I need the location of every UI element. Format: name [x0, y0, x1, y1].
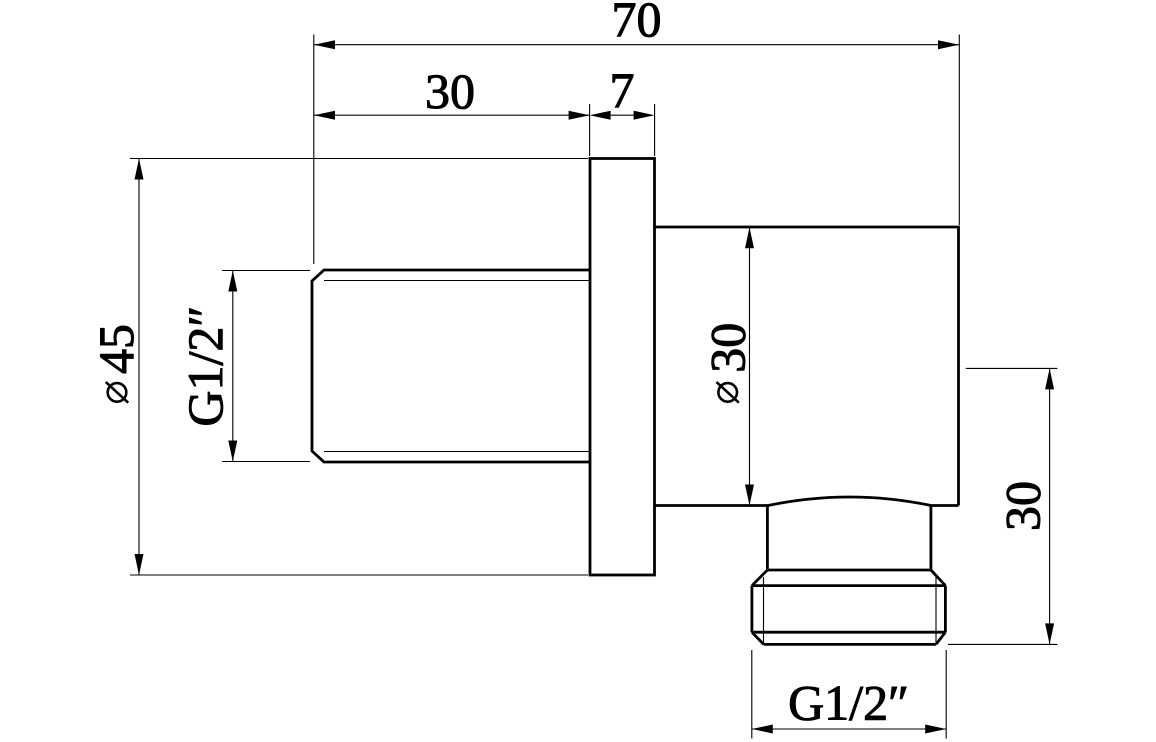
svg-text:7: 7 [610, 62, 635, 118]
svg-text:45: 45 [88, 324, 144, 374]
svg-text:30: 30 [700, 323, 756, 373]
svg-text:30: 30 [425, 63, 475, 119]
svg-text:70: 70 [612, 0, 662, 47]
svg-text:30: 30 [994, 481, 1050, 531]
svg-text:G1/2″: G1/2″ [788, 674, 909, 730]
svg-text:G1/2″: G1/2″ [177, 306, 233, 427]
